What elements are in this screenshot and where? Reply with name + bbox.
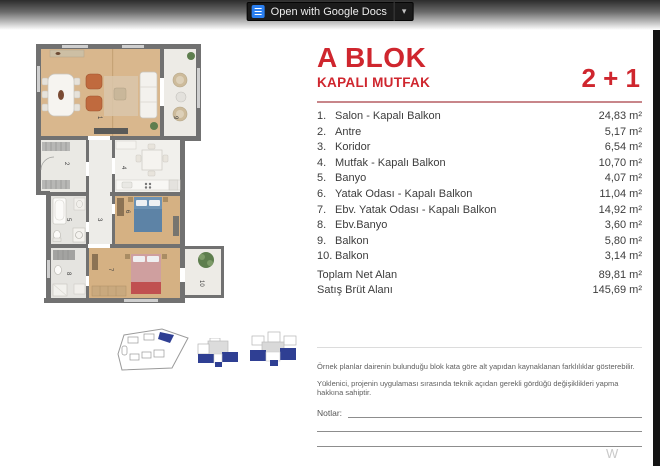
google-docs-icon [252, 5, 265, 18]
watermark: W [606, 446, 618, 461]
notes-label: Notlar: [317, 408, 342, 418]
table-row: 9.Balkon5,80 m² [317, 235, 642, 251]
notes-write-line [317, 446, 642, 447]
floor-plan: 1 2 3 4 5 6 7 8 9 10 [34, 38, 228, 318]
table-row: 1.Salon - Kapalı Balkon24,83 m² [317, 110, 642, 126]
block-key-2 [248, 330, 298, 368]
footer-divider [317, 347, 642, 348]
block-key-1 [196, 338, 240, 368]
disclaimer-1: Örnek planlar dairenin bulunduğu blok ka… [317, 362, 646, 371]
total-gross-row: Satış Brüt Alanı145,69 m² [317, 284, 642, 299]
spec-panel: A BLOK KAPALI MUTFAK 2 + 1 1.Salon - Kap… [315, 0, 652, 466]
table-row: 10.Balkon3,14 m² [317, 250, 642, 266]
room-number-label: 10 [198, 280, 204, 287]
viewer-edge-strip [653, 0, 660, 466]
header-divider [317, 101, 642, 103]
table-row: 8.Ebv.Banyo3,60 m² [317, 219, 642, 235]
room-area-table: 1.Salon - Kapalı Balkon24,83 m² 2.Antre5… [317, 110, 642, 266]
table-row: 2.Antre5,17 m² [317, 126, 642, 142]
balcony-10-plant [198, 252, 214, 268]
disclaimer-2: Yüklenici, projenin uygulaması sırasında… [317, 379, 646, 397]
page-title: A BLOK [317, 42, 426, 74]
table-row: 7.Ebv. Yatak Odası - Kapalı Balkon14,92 … [317, 204, 642, 220]
notes-row: Notlar: [317, 408, 642, 418]
total-net-row: Toplam Net Alan89,81 m² [317, 269, 642, 284]
drive-preview-screen: Open with Google Docs ▾ [0, 0, 660, 466]
unit-type-label: 2 + 1 [581, 63, 640, 94]
table-row: 6.Yatak Odası - Kapalı Balkon11,04 m² [317, 188, 642, 204]
table-row: 3.Koridor6,54 m² [317, 141, 642, 157]
site-plan [112, 326, 196, 374]
notes-write-line [317, 431, 642, 432]
notes-write-line [348, 409, 642, 418]
page-subtitle: KAPALI MUTFAK [317, 75, 430, 90]
totals-block: Toplam Net Alan89,81 m² Satış Brüt Alanı… [317, 269, 642, 299]
table-row: 5.Banyo4,07 m² [317, 172, 642, 188]
table-row: 4.Mutfak - Kapalı Balkon10,70 m² [317, 157, 642, 173]
